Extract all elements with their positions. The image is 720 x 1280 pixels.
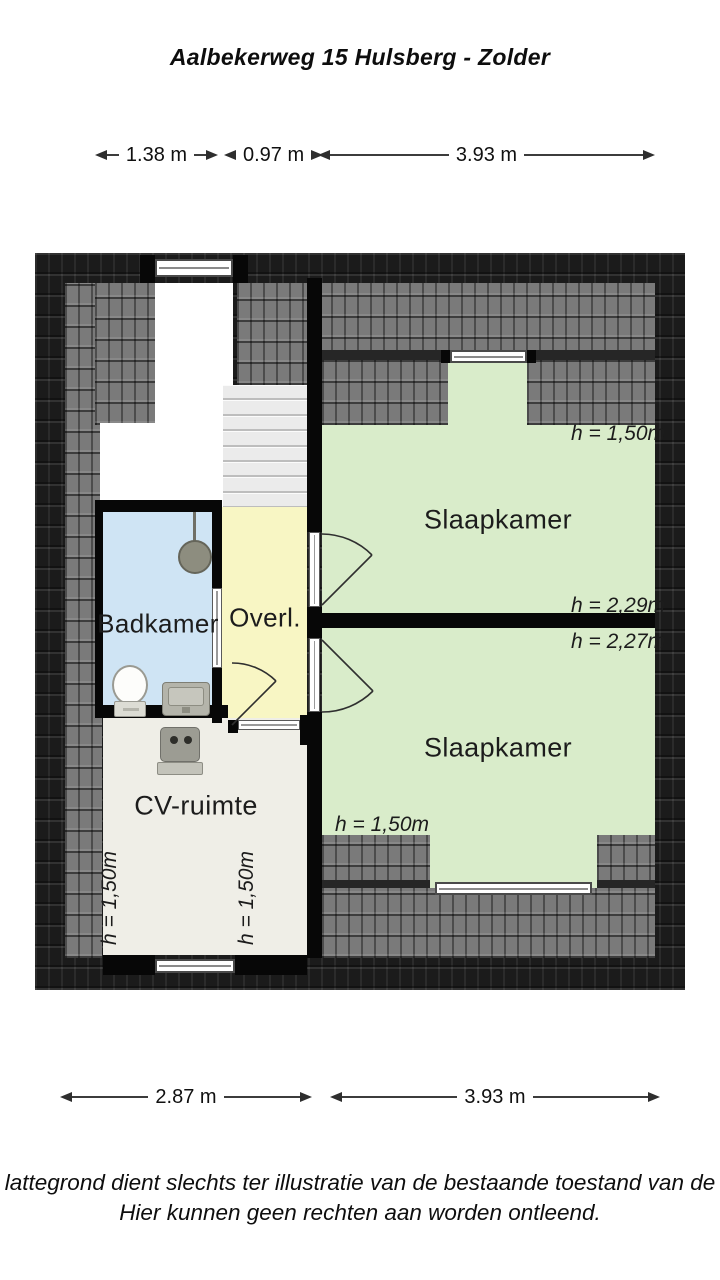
cv-boiler-icon: [160, 727, 200, 762]
stair-tread: [223, 493, 307, 508]
roof-section: [318, 283, 655, 360]
door-swing-slaapkamer-1: [322, 534, 393, 605]
height-label-sk1-bottom: h = 2,29m: [571, 594, 665, 618]
dimension-top-middle: 0.97 m: [224, 143, 304, 167]
arrow-right-icon: [300, 1092, 312, 1102]
room-label-cv-ruimte: CV-ruimte: [134, 791, 258, 822]
room-cv-ruimte: [103, 718, 307, 955]
room-label-overloop: Overl.: [229, 603, 301, 634]
disclaimer-line-1: lattegrond dient slechts ter illustratie…: [5, 1168, 715, 1198]
stair-tread: [223, 462, 307, 477]
dimension-value: 3.93 m: [457, 1086, 532, 1109]
stair-tread: [223, 431, 307, 446]
stair-tread: [223, 416, 307, 431]
arrow-left-icon: [318, 150, 330, 160]
stair-tread: [223, 447, 307, 462]
wall: [527, 350, 536, 363]
dimension-bottom-left: 2.87 m: [60, 1085, 312, 1109]
door-swing-cv-ruimte: [232, 663, 294, 725]
disclaimer: lattegrond dient slechts ter illustratie…: [0, 1168, 720, 1228]
height-label-cv-left: h = 1,50m: [98, 851, 122, 945]
dimension-value: 3.93 m: [449, 144, 524, 167]
roof-section: [237, 283, 307, 385]
arrow-left-icon: [330, 1092, 342, 1102]
room-label-slaapkamer-2: Slaapkamer: [424, 733, 572, 764]
toilet-flush-button: [123, 708, 139, 711]
roof-section: [95, 283, 155, 425]
arrow-left-icon: [224, 150, 236, 160]
arrow-left-icon: [95, 150, 107, 160]
wall: [95, 500, 103, 705]
room-label-badkamer: Badkamer: [97, 609, 219, 640]
wall: [307, 607, 322, 638]
toilet-tank: [114, 701, 146, 717]
stair-tread: [223, 400, 307, 415]
wall: [140, 255, 155, 283]
wall: [307, 278, 322, 532]
window-cv-ruimte: [155, 959, 235, 973]
window-slaapkamer-2: [435, 882, 592, 895]
door-swing-slaapkamer-2: [322, 640, 394, 712]
stair-tread: [223, 385, 307, 400]
arrow-left-icon: [60, 1092, 72, 1102]
wall: [235, 955, 307, 975]
stair-tread: [223, 477, 307, 492]
dimension-value: 2.87 m: [148, 1086, 223, 1109]
roof-section: [322, 360, 448, 425]
height-label-sk2-top: h = 2,27m: [571, 630, 665, 654]
toilet-icon: [112, 665, 148, 705]
wall: [300, 715, 322, 745]
wall: [233, 255, 248, 283]
wall: [441, 350, 450, 363]
dimension-value: 0.97 m: [236, 144, 311, 167]
arrow-right-icon: [643, 150, 655, 160]
window-slaapkamer-1: [450, 350, 527, 363]
dimension-top-right: 3.93 m: [318, 143, 655, 167]
door-slaapkamer-2: [309, 638, 320, 712]
wall: [307, 712, 322, 958]
stairwell-landing: [100, 423, 225, 508]
wall: [103, 955, 155, 975]
stairwell-void: [155, 283, 233, 425]
room-label-slaapkamer-1: Slaapkamer: [424, 505, 572, 536]
arrow-right-icon: [648, 1092, 660, 1102]
room-slaapkamer-1-dormer: [448, 360, 527, 425]
wall: [212, 505, 222, 588]
height-label-cv-right: h = 1,50m: [235, 851, 259, 945]
dimension-value: 1.38 m: [119, 144, 194, 167]
height-label-sk1-top: h = 1,50m: [571, 422, 665, 446]
door-slaapkamer-1: [309, 532, 320, 607]
room-slaapkamer-2-dormer: [430, 835, 597, 888]
sink-tap: [182, 707, 190, 713]
page-title: Aalbekerweg 15 Hulsberg - Zolder: [0, 44, 720, 71]
height-label-sk2-left: h = 1,50m: [335, 813, 429, 837]
window-dormer-top: [155, 259, 233, 277]
roof-section: [527, 360, 655, 425]
dimension-top-left: 1.38 m: [95, 143, 218, 167]
wall: [95, 500, 222, 512]
arrow-right-icon: [206, 150, 218, 160]
floor-plan: Badkamer Overl. Slaapkamer Slaapkamer CV…: [35, 253, 685, 990]
disclaimer-line-2: Hier kunnen geen rechten aan worden ontl…: [119, 1198, 601, 1228]
dimension-bottom-right: 3.93 m: [330, 1085, 660, 1109]
cv-boiler-tray: [157, 762, 203, 775]
roof-section: [322, 888, 655, 958]
shower-head-icon: [178, 540, 212, 574]
staircase: [223, 385, 307, 508]
sink-icon: [162, 682, 210, 716]
